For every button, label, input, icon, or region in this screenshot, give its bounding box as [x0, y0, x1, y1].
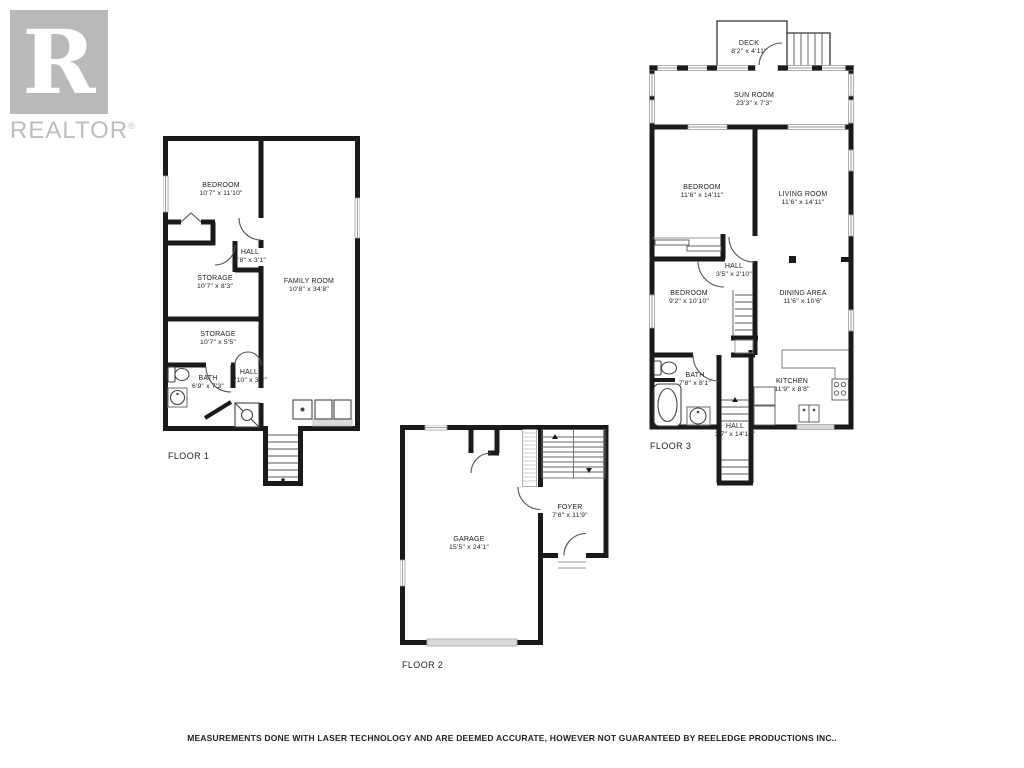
realtor-logo-text: REALTOR®	[10, 117, 130, 145]
shower-drain	[242, 410, 253, 421]
room-label-hall: HALL 3'8" x 3'1"	[234, 249, 266, 265]
floor1-laundry-appliances	[293, 400, 352, 426]
closet-slider-door	[687, 246, 721, 251]
floor2-label: FLOOR 2	[402, 660, 443, 670]
stairs-up-arrow	[732, 397, 738, 402]
registered-trademark-icon: ®	[128, 121, 136, 131]
bathtub-basin	[658, 389, 677, 422]
floor3-kitchen-fixtures	[754, 256, 849, 425]
bedroom-door-arc	[239, 218, 261, 240]
kitchen-counter	[782, 350, 835, 379]
toilet-bowl	[662, 362, 677, 374]
floor1-stairs	[268, 435, 298, 482]
room-label-deck: DECK 8'2" x 4'11"	[731, 40, 766, 56]
floor2-stairs	[542, 430, 605, 479]
closet-door-arc	[471, 453, 491, 473]
floor2-drawing	[400, 425, 612, 677]
washer	[315, 400, 332, 419]
floor3-drawing	[645, 12, 863, 490]
toilet-tank	[654, 361, 661, 375]
floor3-stairs-mid	[733, 290, 753, 353]
realtor-logo-mark: R	[10, 10, 108, 114]
patio-door	[797, 425, 834, 430]
room-label-living-room: LIVING ROOM 11'6" x 14'11"	[779, 191, 828, 207]
room-label-storage: STORAGE 10'7" x 8'3"	[197, 275, 233, 291]
room-label-bedroom: BEDROOM 11'6" x 14'11"	[681, 184, 724, 200]
garage-door	[427, 639, 517, 646]
floor3-bath-fixtures	[654, 361, 710, 426]
room-label-dining-area: DINING AREA 11'6" x 10'6"	[779, 290, 826, 306]
floor3-plan: DECK 8'2" x 4'11" SUN ROOM 23'3" x 7'3" …	[645, 12, 863, 490]
realtor-logo-letter: R	[22, 18, 95, 106]
room-label-storage-2: STORAGE 10'7" x 5'5"	[200, 331, 236, 347]
room-label-bath: BATH 7'8" x 8'1"	[679, 372, 711, 388]
deck-door-opening	[756, 65, 777, 71]
sink-faucet	[697, 411, 700, 414]
realtor-logo: R REALTOR®	[10, 10, 130, 145]
floor1-drawing	[163, 136, 360, 488]
floor2-windows	[400, 425, 447, 586]
room-label-bedroom-2: BEDROOM 9'2" x 10'10"	[669, 290, 709, 306]
room-label-hall-2: HALL 3'7" x 14'10"	[715, 423, 755, 439]
room-label-hall-2: HALL 3'10" x 3'2"	[231, 369, 267, 385]
deck-stairs	[794, 33, 822, 66]
front-entry-door-arc	[564, 534, 586, 556]
room-label-garage: GARAGE 15'5" x 24'1"	[449, 536, 489, 552]
garage-entry-door-arc	[518, 487, 541, 510]
room-label-foyer: FOYER 7'6" x 11'9"	[552, 504, 587, 520]
appliance	[754, 387, 775, 405]
room-label-kitchen: KITCHEN 11'9" x 8'8"	[774, 378, 809, 394]
floor2-stair-hatch	[523, 430, 537, 487]
stove	[832, 379, 849, 400]
room-label-bedroom: BEDROOM 10'7" x 11'10"	[199, 182, 242, 198]
floor1-plan: BEDROOM 10'7" x 11'10" HALL 3'8" x 3'1" …	[163, 136, 360, 488]
floorplan-canvas: R REALTOR®	[0, 0, 1024, 768]
stairs-up-arrow	[552, 434, 558, 439]
counter-strip	[313, 419, 352, 426]
room-label-hall: HALL 3'5" x 2'10"	[716, 263, 752, 279]
floor1-walls	[163, 136, 360, 486]
closet-bifold-door	[181, 213, 201, 222]
floor1-label: FLOOR 1	[168, 451, 209, 461]
living-room-door-arc	[729, 237, 755, 262]
sink-basin	[690, 408, 706, 424]
double-door-left-arc	[235, 352, 248, 365]
storage-door-arc	[215, 245, 235, 265]
room-label-sun-room: SUN ROOM 23'3" x 7'3"	[734, 92, 774, 108]
appliance	[754, 406, 775, 425]
structural-post	[789, 256, 796, 263]
disclaimer-text: MEASUREMENTS DONE WITH LASER TECHNOLOGY …	[0, 733, 1024, 743]
room-label-bath: BATH 6'9" x 7'3"	[192, 375, 224, 391]
closet-slider-door	[655, 240, 689, 245]
floor3-label: FLOOR 3	[650, 441, 691, 451]
toilet-tank	[168, 367, 175, 382]
floor3-closet	[652, 238, 721, 251]
room-label-family-room: FAMILY ROOM 10'8" x 34'8"	[284, 278, 334, 294]
floor2-plan: GARAGE 15'5" x 24'1" FOYER 7'6" x 11'9" …	[400, 425, 612, 677]
sink-basin	[171, 391, 185, 405]
sink-faucet	[176, 393, 178, 395]
dryer	[334, 400, 351, 419]
toilet-bowl	[175, 369, 189, 381]
